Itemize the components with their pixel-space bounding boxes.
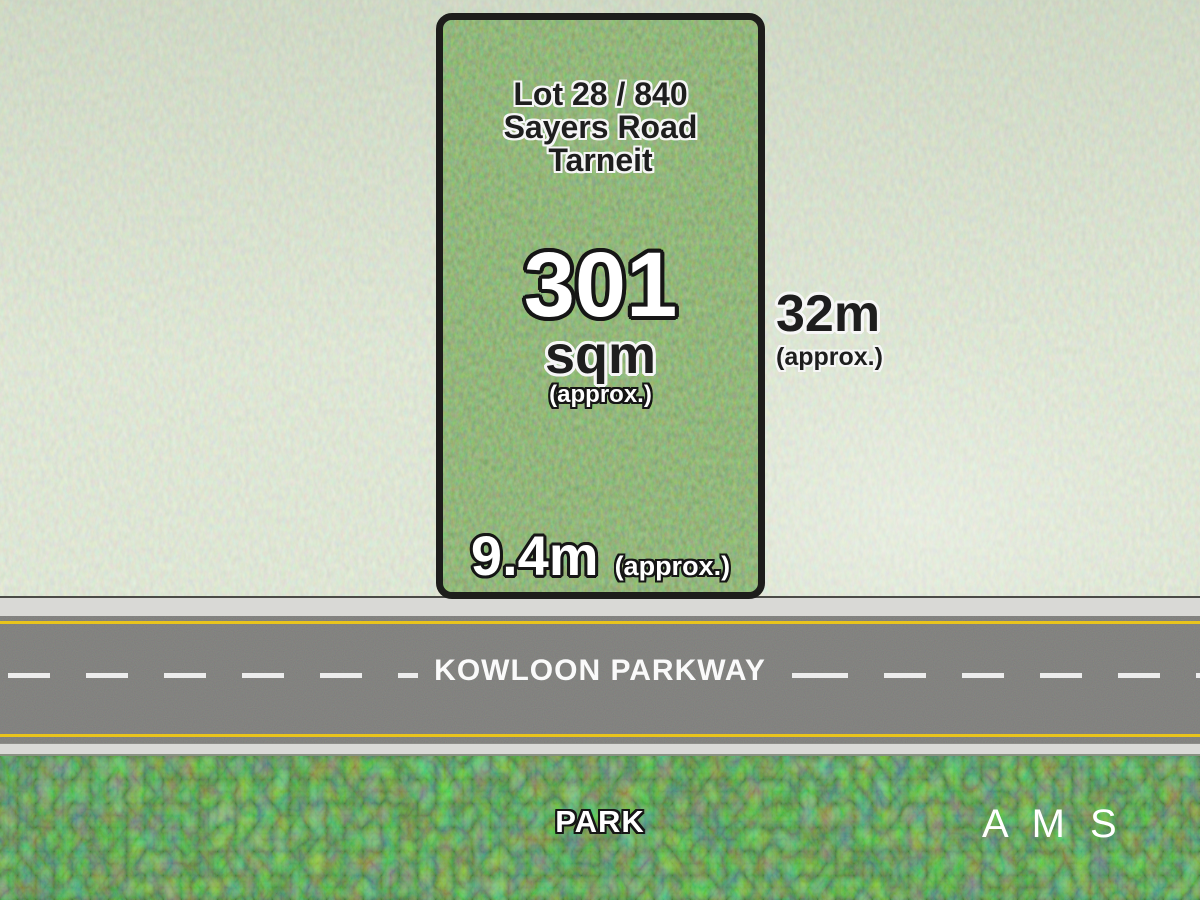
lot-address-line1: Lot 28 / 840 — [443, 78, 758, 111]
lot-address-line2: Sayers Road — [443, 111, 758, 144]
park-area: PARK A M S — [0, 756, 1200, 900]
lot-address: Lot 28 / 840 Sayers Road Tarneit — [443, 78, 758, 177]
road-surface: KOWLOON PARKWAY — [0, 616, 1200, 743]
lot-area: 301 sqm (approx.) — [443, 238, 758, 410]
lot-address-line3: Tarneit — [443, 144, 758, 177]
footpath-top — [0, 596, 1200, 616]
ams-logo: A M S — [982, 802, 1124, 847]
lot-area-unit: sqm — [443, 332, 758, 378]
lot-depth-note: (approx.) — [776, 342, 883, 372]
lot-frontage-dimension: 9.4m (approx.) — [443, 526, 758, 586]
lot-depth-dimension: 32m (approx.) — [776, 288, 883, 372]
lot-boundary: Lot 28 / 840 Sayers Road Tarneit 301 sqm… — [436, 13, 765, 599]
lot-frontage-value: 9.4m — [471, 526, 599, 586]
lot-area-note: (approx.) — [443, 380, 758, 410]
lot-area-value: 301 — [443, 238, 758, 332]
land-sale-plan: KOWLOON PARKWAY PARK A M S Lot 28 / 840 … — [0, 0, 1200, 900]
footpath-bottom — [0, 743, 1200, 756]
road-name-label: KOWLOON PARKWAY — [0, 652, 1200, 690]
lot-frontage-note: (approx.) — [615, 551, 731, 582]
lot-depth-value: 32m — [776, 288, 883, 340]
road-edge-line-bottom — [0, 734, 1200, 737]
road-edge-line-top — [0, 621, 1200, 624]
